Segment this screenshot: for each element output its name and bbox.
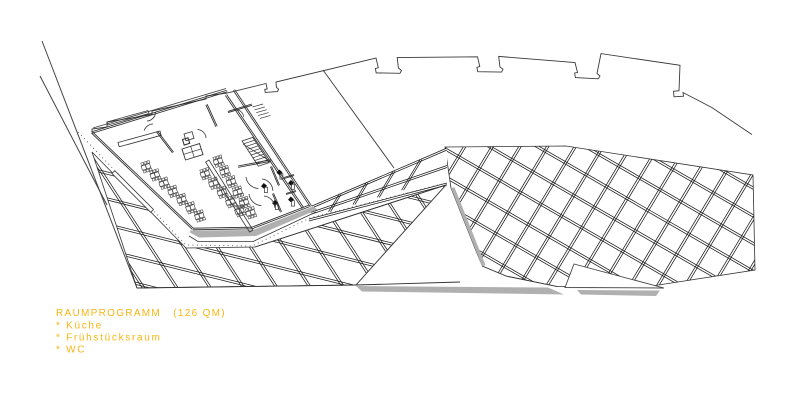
svg-text:* Frühstücksraum: * Frühstücksraum <box>56 333 162 344</box>
svg-text:* WC: * WC <box>56 345 86 356</box>
svg-text:RAUMPROGRAMM (126 QM): RAUMPROGRAMM (126 QM) <box>56 308 226 319</box>
svg-text:* Küche: * Küche <box>56 321 103 332</box>
